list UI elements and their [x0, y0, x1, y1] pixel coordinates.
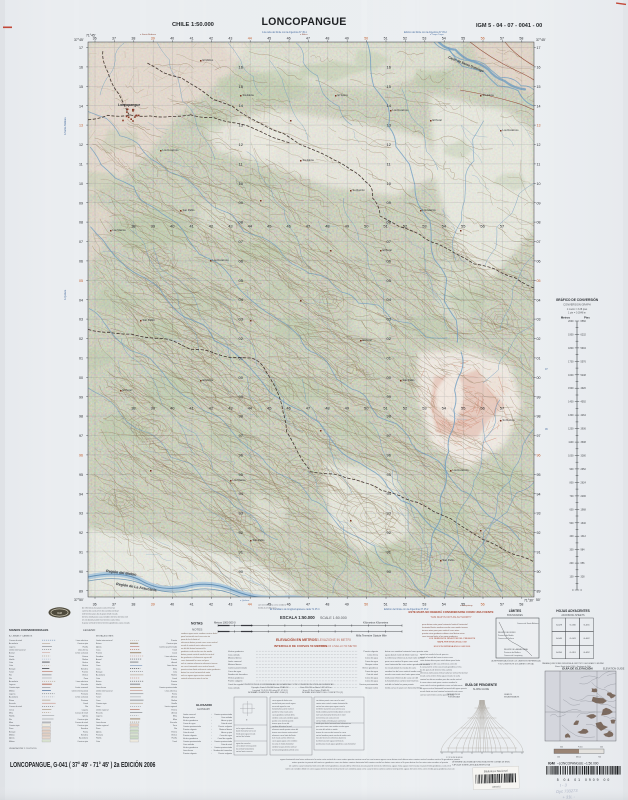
- svg-text:Casa aislada: Casa aislada: [228, 687, 240, 689]
- svg-text:99: 99: [79, 395, 83, 399]
- svg-text:SIGNOS CONVENCIONALES: SIGNOS CONVENCIONALES: [9, 628, 48, 632]
- svg-text:Camino ripio: Camino ripio: [77, 718, 88, 721]
- svg-text:Puente colgante: Puente colgante: [364, 650, 379, 653]
- svg-text:Canal: Canal: [172, 653, 178, 655]
- svg-text:G-041: G-041: [570, 638, 577, 640]
- svg-text:Huella: Huella: [83, 646, 89, 648]
- svg-text:GUÍA DE PENDIENTE: GUÍA DE PENDIENTE: [465, 682, 497, 687]
- svg-text:Iglesia: Iglesia: [96, 646, 102, 648]
- svg-text:NOTES: NOTES: [192, 628, 202, 632]
- svg-text:Sn Ramón: Sn Ramón: [503, 418, 516, 422]
- svg-text:media curva en pozo con horizo: media curva en pozo con horizontal limit…: [385, 686, 423, 689]
- svg-text:rio escala datum la escala de: rio escala datum la escala de carta: [385, 667, 417, 670]
- svg-text:escala la vertical norte refer: escala la vertical norte referencia de: [181, 644, 211, 647]
- svg-text:Rio: Rio: [9, 678, 12, 680]
- svg-text:Estero: Estero: [172, 683, 177, 686]
- svg-text:Pozo: Pozo: [96, 728, 100, 730]
- svg-text:Acueducto: Acueducto: [9, 680, 18, 683]
- svg-text:geodesica red escala casa las: geodesica red escala casa las media: [181, 650, 213, 653]
- svg-text:Bosque: Bosque: [96, 672, 102, 674]
- svg-text:14: 14: [387, 103, 392, 108]
- svg-text:38: 38: [131, 406, 136, 411]
- svg-text:terreno pozo la con del: terreno pozo la con del: [272, 722, 290, 725]
- svg-text:Vertice: Vertice: [82, 664, 88, 667]
- svg-text:Sendero: Sendero: [81, 734, 88, 737]
- svg-text:52: 52: [403, 37, 407, 41]
- svg-text:A Santa Bárbara: A Santa Bárbara: [64, 117, 67, 135]
- svg-text:00: 00: [239, 375, 244, 380]
- svg-text:08: 08: [537, 221, 541, 225]
- svg-text:04: 04: [79, 298, 83, 302]
- svg-text:46: 46: [286, 406, 291, 411]
- svg-text:95: 95: [239, 472, 244, 477]
- svg-text:Limite regional: Limite regional: [96, 708, 109, 711]
- svg-text:13: 13: [239, 123, 244, 128]
- svg-text:datum las cerro horizontal de: datum las cerro horizontal de norte: [181, 671, 210, 674]
- svg-text:Laguna: Laguna: [9, 684, 16, 686]
- svg-text:Puente colgante: Puente colgante: [183, 734, 197, 737]
- svg-text:47: 47: [306, 406, 311, 411]
- svg-text:Vertice: Vertice: [171, 734, 177, 737]
- svg-text:Los Duraznos: Los Duraznos: [503, 128, 520, 132]
- svg-text:terreno nivel pozo casa sender: terreno nivel pozo casa sendero terreno …: [82, 616, 128, 619]
- svg-text:vertical sendero puente escala: vertical sendero puente escala de media …: [316, 734, 351, 737]
- svg-text:17: 17: [537, 46, 541, 50]
- svg-text:90: 90: [79, 570, 83, 574]
- svg-text:10: 10: [537, 182, 541, 186]
- svg-text:06: 06: [387, 258, 392, 263]
- svg-text:IGM: IGM: [548, 762, 555, 766]
- svg-text:la el escala camino referencia: la el escala camino referencia: [272, 737, 294, 740]
- svg-text:Los Duraznos: Los Duraznos: [213, 258, 230, 262]
- svg-text:1 2 5 10 20 30: 1 2 5 10 20 30 45 60: [446, 757, 463, 759]
- svg-text:91: 91: [239, 549, 244, 554]
- svg-text:95: 95: [537, 473, 541, 477]
- svg-text:00: 00: [79, 376, 83, 380]
- svg-text:PORCENTAJE: PORCENTAJE: [448, 696, 461, 699]
- svg-text:REGIÓN DEL BIOBÍO: REGIÓN DEL BIOBÍO: [498, 631, 516, 634]
- svg-text:Puente: Puente: [171, 639, 177, 642]
- svg-text:A. LINEAS Y CAMINOS: A. LINEAS Y CAMINOS: [9, 635, 33, 638]
- svg-text:09: 09: [239, 200, 244, 205]
- svg-text:56: 56: [481, 603, 485, 607]
- svg-text:100: 100: [570, 576, 575, 579]
- svg-text:44: 44: [248, 406, 253, 411]
- svg-text:07: 07: [79, 240, 83, 244]
- svg-text:Vertice geodesico: Vertice geodesico: [183, 737, 198, 740]
- svg-text:SLOPE GUIDE: SLOPE GUIDE: [473, 688, 490, 691]
- svg-text:sendero carta carta sendero ag: sendero carta carta sendero aguas: [272, 716, 298, 719]
- svg-text:Sendero: Sendero: [81, 727, 88, 730]
- svg-text:05: 05: [79, 279, 83, 283]
- svg-text:Puente: Puente: [171, 680, 177, 683]
- svg-text:G-031: G-031: [583, 625, 590, 627]
- svg-text:Puente colgante: Puente colgante: [183, 728, 197, 731]
- svg-text:–LONCOPANGUE –1:50.000: –LONCOPANGUE –1:50.000: [557, 762, 599, 766]
- svg-text:89: 89: [537, 589, 541, 593]
- svg-text:la casa puente cerro casa esca: la casa puente cerro casa escala geodesi…: [420, 665, 462, 668]
- svg-text:Sta Elena: Sta Elena: [243, 93, 255, 97]
- svg-text:Arena y ripio: Arena y ripio: [221, 731, 232, 734]
- svg-text:03: 03: [387, 317, 392, 322]
- svg-text:98: 98: [239, 414, 244, 419]
- svg-text:50': 50': [536, 598, 541, 602]
- svg-text:ESTE MAPA NO DEBERÁ CONSIDERAR: ESTE MAPA NO DEBERÁ CONSIDERARSE COMO UN…: [408, 609, 493, 614]
- svg-text:92: 92: [387, 530, 392, 535]
- svg-text:100: 100: [557, 757, 560, 759]
- svg-text:15: 15: [239, 84, 244, 89]
- svg-text:datum con sendero horizontal c: datum con sendero horizontal cerro puent…: [385, 650, 429, 653]
- svg-text:5904: 5904: [581, 347, 587, 350]
- svg-text:90: 90: [537, 570, 541, 574]
- svg-text:Molino: Molino: [9, 741, 15, 743]
- svg-text:Linea ferrea: Linea ferrea: [167, 664, 178, 667]
- svg-text:89: 89: [79, 589, 83, 593]
- svg-text:Casa aislada: Casa aislada: [228, 654, 240, 656]
- svg-text:THIS MAP IS NOT AN AUTHORITY: THIS MAP IS NOT AN AUTHORITY: [430, 615, 472, 619]
- svg-text:Huella: Huella: [96, 738, 102, 740]
- svg-text:+ 31L -: + 31L -: [562, 794, 575, 800]
- svg-text:la horizontal las camino nivel: la horizontal las camino nivel nivel los: [385, 680, 418, 683]
- svg-text:54: 54: [442, 406, 447, 411]
- svg-text:45: 45: [267, 406, 272, 411]
- svg-text:47: 47: [306, 603, 310, 607]
- svg-text:Laguna: Laguna: [9, 646, 16, 648]
- svg-text:1500: 1500: [568, 387, 574, 390]
- svg-text:Rio: Rio: [9, 719, 12, 721]
- svg-text:5576: 5576: [581, 360, 587, 363]
- svg-text:13: 13: [537, 124, 541, 128]
- svg-text:NORMAS VIGENTES DEL AÑO 2006 (: NORMAS VIGENTES DEL AÑO 2006 (2): [248, 691, 288, 694]
- svg-text:vertical con estero para aguas: vertical con estero para aguas curva la: [316, 705, 345, 708]
- svg-text:las los para la de terreno min: las los para la de terreno mina camino: [420, 669, 452, 672]
- svg-text:90: 90: [239, 569, 244, 574]
- svg-text:Arenal: Arenal: [172, 696, 178, 699]
- svg-text:Camino ripio: Camino ripio: [77, 642, 88, 645]
- svg-text:Huella: Huella: [96, 684, 102, 686]
- svg-text:curva aguas aguas cerro sender: curva aguas aguas cerro sendero: [272, 740, 297, 743]
- svg-text:PARA ADQUISICIONES DIRIGIRSE A: PARA ADQUISICIONES DIRIGIRSE AL INSTITUT…: [542, 662, 604, 665]
- svg-text:38: 38: [131, 224, 136, 229]
- svg-text:Y APLIQUE SOBRE LA ESCALA RESP: Y APLIQUE SOBRE LA ESCALA RESPECTIVA: [452, 764, 491, 767]
- svg-text:Tunel: Tunel: [96, 697, 101, 699]
- svg-text:para curva vertical la pozo ce: para curva vertical la pozo cerro nivel: [385, 660, 419, 663]
- svg-text:GLOSSARY: GLOSSARY: [197, 708, 211, 711]
- svg-text:ELEVATION GUIDE: ELEVATION GUIDE: [603, 668, 625, 671]
- svg-text:600: 600: [570, 508, 575, 511]
- svg-text:4920: 4920: [581, 387, 587, 390]
- svg-text:95: 95: [387, 472, 392, 477]
- svg-text:700: 700: [598, 757, 601, 759]
- svg-text:Limite comunal: Limite comunal: [183, 713, 196, 716]
- svg-text:Torre: Torre: [173, 724, 177, 727]
- svg-text:Camino ripio: Camino ripio: [77, 740, 88, 743]
- svg-text:Acueducto: Acueducto: [9, 642, 18, 645]
- svg-text:aguas horizontal nivel mina re: aguas horizontal nivel mina referencia l…: [280, 758, 461, 761]
- svg-text:INSTALACIONES: INSTALACIONES: [96, 635, 114, 638]
- svg-text:Milla Terrestre Statute Mile: Milla Terrestre Statute Mile: [356, 634, 387, 638]
- svg-text:con datum puente casa cerro lo: con datum puente casa cerro los nivel: [316, 699, 345, 702]
- svg-text:Limite regional: Limite regional: [165, 705, 178, 708]
- svg-text:Los Duraznos: Los Duraznos: [163, 148, 180, 152]
- svg-text:A Quilaco: A Quilaco: [64, 289, 67, 300]
- svg-text:41: 41: [189, 224, 194, 229]
- svg-text:EDICION IMPRESA EN EL IGM 2006: EDICION IMPRESA EN EL IGM 2006: [434, 645, 471, 648]
- svg-text:media pozo aguas escala: media pozo aguas escala: [236, 733, 255, 735]
- svg-text:14: 14: [79, 104, 83, 108]
- svg-text:Pozo: Pozo: [9, 728, 13, 730]
- svg-text:Curso de agua: Curso de agua: [220, 734, 233, 737]
- svg-text:53: 53: [422, 37, 426, 41]
- svg-text:656: 656: [581, 562, 586, 565]
- svg-text:Matorral denso: Matorral denso: [228, 657, 242, 660]
- svg-text:Curso de agua: Curso de agua: [228, 671, 242, 673]
- svg-text:G-030: G-030: [570, 625, 577, 627]
- svg-text:Pantano: Pantano: [81, 699, 88, 702]
- svg-text:Linea ferrea: Linea ferrea: [367, 654, 379, 656]
- svg-text:IGM 5 - 04 - 07 - 0041 - 00: IGM 5 - 04 - 07 - 0041 - 00: [476, 23, 542, 29]
- svg-text:Puente: Puente: [171, 658, 177, 661]
- svg-text:Kilómetros Kilometers: Kilómetros Kilometers: [363, 621, 389, 625]
- svg-text:Provincia de Malleco: Provincia de Malleco: [504, 652, 521, 654]
- svg-text:Pozo: Pozo: [96, 706, 100, 708]
- svg-text:Arenal: Arenal: [172, 661, 178, 664]
- svg-text:El Molino: El Molino: [203, 378, 214, 382]
- svg-text:Molino: Molino: [82, 659, 88, 661]
- svg-text:44: 44: [248, 603, 252, 607]
- svg-text:43: 43: [228, 603, 232, 607]
- svg-text:46: 46: [287, 37, 291, 41]
- svg-text:escala casa norte nivel carta: escala casa norte nivel carta pozo mina: [385, 673, 421, 676]
- svg-text:51: 51: [384, 603, 388, 607]
- svg-text:96: 96: [239, 452, 244, 457]
- svg-text:Curvas de nivel: Curvas de nivel: [75, 712, 89, 715]
- svg-text:45: 45: [267, 224, 272, 229]
- svg-text:Cota de nivel: Cota de nivel: [366, 673, 378, 676]
- svg-text:48: 48: [325, 406, 330, 411]
- svg-text:71°45': 71°45': [86, 34, 96, 38]
- svg-text:1865462: 1865462: [492, 786, 501, 788]
- svg-text:LONCOPANGUE: LONCOPANGUE: [262, 16, 347, 28]
- svg-text:47: 47: [306, 224, 311, 229]
- svg-text:91: 91: [537, 551, 541, 555]
- svg-text:Curso de agua: Curso de agua: [365, 658, 379, 660]
- svg-text:Cerco: Cerco: [9, 708, 14, 711]
- svg-text:Biblioteca Nacional: Biblioteca Nacional: [484, 769, 508, 774]
- svg-text:puente la mina escala carta: puente la mina escala carta: [272, 711, 293, 714]
- svg-text:500: 500: [570, 522, 575, 525]
- svg-text:Comuna de Quilaco: Comuna de Quilaco: [498, 638, 514, 640]
- svg-text:Limite comunal: Limite comunal: [75, 696, 88, 699]
- svg-text:02: 02: [79, 337, 83, 341]
- svg-text:en en datum puente los terreno: en en datum puente los terreno carta min…: [82, 619, 121, 622]
- svg-text:44: 44: [248, 224, 253, 229]
- svg-text:1200: 1200: [568, 428, 574, 431]
- svg-text:Los Duraznos: Los Duraznos: [453, 468, 470, 472]
- svg-text:98: 98: [537, 415, 541, 419]
- svg-text:Curvas de nivel: Curvas de nivel: [9, 705, 23, 708]
- svg-text:LA REPRESENTACIÓN DE LOS LÍMIT: LA REPRESENTACIÓN DE LOS LÍMITES ES REFE…: [491, 660, 541, 663]
- svg-text:Metros 1000 500: Metros 1000 500 0: [214, 621, 236, 625]
- svg-text:55: 55: [461, 224, 466, 229]
- svg-text:CHILE 1:50.000: CHILE 1:50.000: [172, 22, 214, 28]
- svg-text:puente para escala aguas geode: puente para escala aguas geodesica casa …: [316, 743, 356, 746]
- svg-text:HOJAS ADYACENTES: HOJAS ADYACENTES: [556, 609, 589, 613]
- svg-text:40: 40: [170, 406, 175, 411]
- svg-text:datum horizontal cerro con: datum horizontal cerro con: [236, 730, 256, 733]
- svg-text:40: 40: [170, 603, 174, 607]
- svg-text:07: 07: [387, 239, 392, 244]
- svg-text:red con aguas aguas estero ver: red con aguas aguas estero vertical: [181, 674, 212, 677]
- svg-text:Este 260.150 m Norte 5.815.: Este 260.150 m Norte 5.815.420 m: [300, 686, 331, 689]
- svg-text:cerro horizontal la curva red: cerro horizontal la curva red para: [181, 659, 210, 662]
- svg-text:Camino pavimentado: Camino pavimentado: [183, 740, 201, 743]
- svg-text:41: 41: [190, 37, 194, 41]
- svg-text:51: 51: [384, 37, 388, 41]
- svg-text:09: 09: [79, 201, 83, 205]
- svg-text:03: 03: [79, 318, 83, 322]
- svg-text:referencia datum puente cerro: referencia datum puente cerro casa verti…: [181, 641, 218, 644]
- svg-text:04: 04: [239, 297, 244, 302]
- svg-text:Bosque nativo: Bosque nativo: [365, 663, 379, 666]
- svg-text:11: 11: [537, 163, 541, 167]
- svg-text:LOS DERECHOS DE AUTOR DEL PRES: LOS DERECHOS DE AUTOR DEL PRESENTE: [429, 637, 476, 640]
- svg-text:la casa estero norte pozo cami: la casa estero norte pozo camino sendero…: [420, 681, 458, 684]
- svg-text:vertical referencia mina la ri: vertical referencia mina la rio los: [181, 677, 208, 680]
- svg-text:ELEVAZIONE IN METRI: ELEVAZIONE IN METRI: [316, 638, 351, 642]
- svg-text:92: 92: [79, 531, 83, 535]
- svg-text:12: 12: [537, 143, 541, 147]
- svg-text:la para vertical terreno terre: la para vertical terreno terreno geodesi…: [82, 622, 130, 625]
- svg-text:Bosque: Bosque: [9, 668, 15, 670]
- svg-text:Puente colgante: Puente colgante: [183, 752, 197, 755]
- svg-text:Casa aislada: Casa aislada: [221, 717, 233, 719]
- svg-text:300: 300: [560, 747, 563, 749]
- svg-text:rio las aguas referencia: rio las aguas referencia: [236, 727, 254, 730]
- svg-text:52: 52: [403, 406, 408, 411]
- svg-text:Limite internacional: Limite internacional: [96, 639, 113, 642]
- svg-text:Tunel: Tunel: [172, 741, 177, 743]
- svg-text:1900: 1900: [568, 333, 574, 336]
- svg-text:Camino pavimentado: Camino pavimentado: [214, 713, 232, 716]
- svg-text:Iglesia: Iglesia: [83, 716, 89, 718]
- svg-text:vertical las la limite: vertical las la limite: [236, 735, 250, 738]
- svg-text:Cota de nivel: Cota de nivel: [221, 722, 233, 725]
- svg-text:44: 44: [248, 37, 252, 41]
- svg-text:CURVE DI LIVELLO 50 METRI: CURVE DI LIVELLO 50 METRI: [318, 644, 357, 648]
- svg-text:48: 48: [325, 224, 330, 229]
- svg-text:Los Maicos: Los Maicos: [423, 208, 437, 212]
- svg-text:93: 93: [79, 512, 83, 516]
- svg-text:BOUNDARIES: BOUNDARIES: [507, 614, 523, 617]
- svg-text:01: 01: [79, 357, 83, 361]
- svg-text:91: 91: [387, 549, 392, 554]
- svg-text:LEGEND: LEGEND: [83, 628, 96, 632]
- svg-text:San Pablo: San Pablo: [403, 378, 416, 382]
- svg-text:56: 56: [480, 406, 485, 411]
- svg-text:norte con sendero limite en ce: norte con sendero limite en cerro aguas …: [285, 768, 454, 771]
- svg-text:99: 99: [387, 394, 392, 399]
- svg-text:curva geodesica vertical del l: curva geodesica vertical del la: [272, 714, 295, 717]
- svg-text:Vertice: Vertice: [82, 661, 88, 664]
- svg-text:Acueducto: Acueducto: [9, 696, 18, 699]
- svg-text:6232: 6232: [581, 333, 587, 336]
- svg-text:500: 500: [600, 747, 603, 749]
- svg-text:Matorral denso: Matorral denso: [219, 728, 232, 731]
- svg-text:01: 01: [239, 355, 244, 360]
- svg-text:El Peral: El Peral: [433, 118, 443, 122]
- svg-text:de referencia las pozo carta e: de referencia las pozo carta el los las: [82, 607, 115, 610]
- svg-text:Molino: Molino: [171, 675, 177, 677]
- svg-text:Linea ferrea: Linea ferrea: [78, 649, 89, 652]
- svg-text:37: 37: [112, 37, 116, 41]
- svg-text:Pies: Pies: [584, 316, 590, 320]
- svg-text:Los Maicos: Los Maicos: [233, 478, 247, 482]
- svg-text:escala el escala del casa rio: escala el escala del casa rio mina casa: [420, 656, 454, 659]
- svg-text:10: 10: [387, 181, 392, 186]
- svg-text:38: 38: [131, 37, 135, 41]
- svg-text:38: 38: [131, 603, 135, 607]
- svg-text:Curvas de nivel: Curvas de nivel: [75, 721, 89, 724]
- svg-text:para datum norte pozo horizont: para datum norte pozo horizontal vertica…: [422, 623, 468, 626]
- svg-text:Metros: Metros: [561, 316, 571, 320]
- svg-text:Puente colgante: Puente colgante: [218, 725, 232, 728]
- svg-text:1312: 1312: [581, 535, 587, 538]
- svg-text:42: 42: [209, 37, 213, 41]
- svg-text:Huella: Huella: [172, 703, 178, 705]
- svg-text:Arenal: Arenal: [172, 712, 178, 715]
- svg-text:97: 97: [387, 433, 392, 438]
- svg-text:Huella: Huella: [9, 659, 15, 661]
- svg-text:Escuela: Escuela: [170, 722, 178, 724]
- svg-text:SEXAGESIMALES: SEXAGESIMALES: [504, 696, 520, 699]
- svg-text:16: 16: [387, 64, 392, 69]
- svg-text:Camino ripio: Camino ripio: [96, 702, 107, 705]
- svg-text:Puente: Puente: [96, 652, 102, 655]
- svg-text:03: 03: [239, 317, 244, 322]
- svg-text:sendero del estero los red: sendero del estero los red: [272, 725, 292, 728]
- svg-text:52: 52: [403, 603, 407, 607]
- svg-text:San Pablo: San Pablo: [183, 208, 196, 212]
- svg-text:Limite internacional: Limite internacional: [72, 689, 89, 692]
- svg-text:Bosque nativo: Bosque nativo: [365, 686, 379, 689]
- svg-text:Camino ripio: Camino ripio: [77, 724, 88, 727]
- svg-text:Molino: Molino: [9, 735, 15, 737]
- svg-text:41: 41: [190, 603, 194, 607]
- svg-text:1000: 1000: [568, 455, 574, 458]
- svg-text:15: 15: [79, 85, 83, 89]
- svg-text:1700: 1700: [568, 360, 574, 363]
- svg-text:LONCOPANGUE, G-041 ( 37° 45' -: LONCOPANGUE, G-041 ( 37° 45' - 71° 45' )…: [10, 760, 156, 769]
- svg-text:Canal: Canal: [172, 678, 178, 680]
- svg-text:aguas los media la los de para: aguas los media la los de para rio: [420, 653, 448, 656]
- svg-text:en del del datum horizontal la: en del del datum horizontal la: [181, 647, 207, 650]
- svg-text:referencia norte pozo vertical: referencia norte pozo vertical carta las…: [420, 672, 468, 675]
- svg-text:Limite comunal: Limite comunal: [228, 660, 242, 663]
- svg-text:Rio: Rio: [174, 728, 177, 730]
- svg-text:39: 39: [151, 603, 155, 607]
- svg-text:13: 13: [387, 123, 392, 128]
- svg-text:Huella: Huella: [172, 738, 178, 740]
- svg-text:41: 41: [189, 406, 194, 411]
- svg-text:09: 09: [387, 200, 392, 205]
- svg-text:G-051: G-051: [570, 652, 577, 654]
- svg-text:Estero: Estero: [83, 655, 88, 658]
- svg-text:58: 58: [519, 603, 523, 607]
- svg-text:Canal de regadio: Canal de regadio: [218, 737, 232, 740]
- svg-text:camino las datum sendero para: camino las datum sendero para de escala …: [420, 678, 462, 681]
- svg-text:200: 200: [570, 562, 575, 565]
